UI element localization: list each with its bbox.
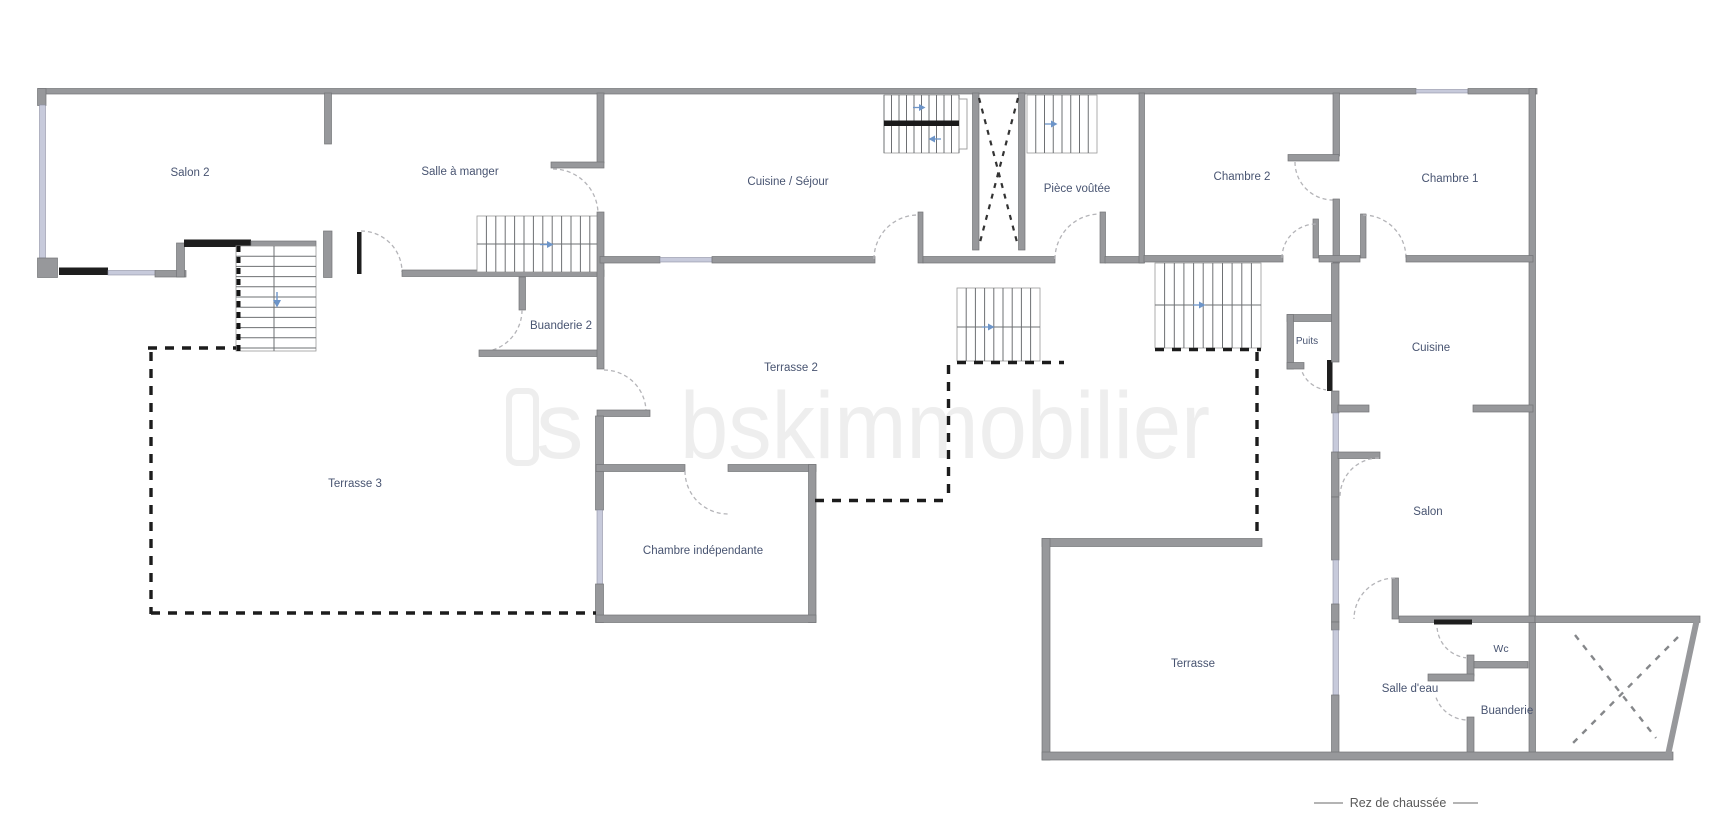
svg-text:Chambre 1: Chambre 1: [1422, 173, 1479, 185]
svg-text:Cuisine / Séjour: Cuisine / Séjour: [747, 176, 828, 188]
svg-text:Salle à manger: Salle à manger: [421, 166, 499, 178]
svg-text:Terrasse 3: Terrasse 3: [328, 478, 382, 490]
svg-text:Salon: Salon: [1413, 506, 1442, 518]
svg-text:Pièce voûtée: Pièce voûtée: [1044, 183, 1111, 195]
svg-text:Buanderie: Buanderie: [1481, 705, 1533, 717]
svg-text:Terrasse 2: Terrasse 2: [764, 362, 818, 374]
svg-text:Buanderie 2: Buanderie 2: [530, 320, 592, 332]
svg-text:bskimmobilier: bskimmobilier: [680, 373, 1210, 479]
svg-text:Terrasse: Terrasse: [1171, 658, 1215, 670]
svg-text:Wc: Wc: [1493, 643, 1508, 655]
svg-text:Chambre indépendante: Chambre indépendante: [643, 545, 763, 557]
svg-text:Salle d'eau: Salle d'eau: [1382, 683, 1439, 695]
svg-text:Rez de chaussée: Rez de chaussée: [1350, 796, 1447, 810]
svg-text:s: s: [536, 373, 584, 479]
svg-text:Salon 2: Salon 2: [170, 167, 209, 179]
svg-text:Chambre 2: Chambre 2: [1214, 171, 1271, 183]
svg-text:Cuisine: Cuisine: [1412, 342, 1450, 354]
svg-text:Puits: Puits: [1296, 336, 1318, 347]
